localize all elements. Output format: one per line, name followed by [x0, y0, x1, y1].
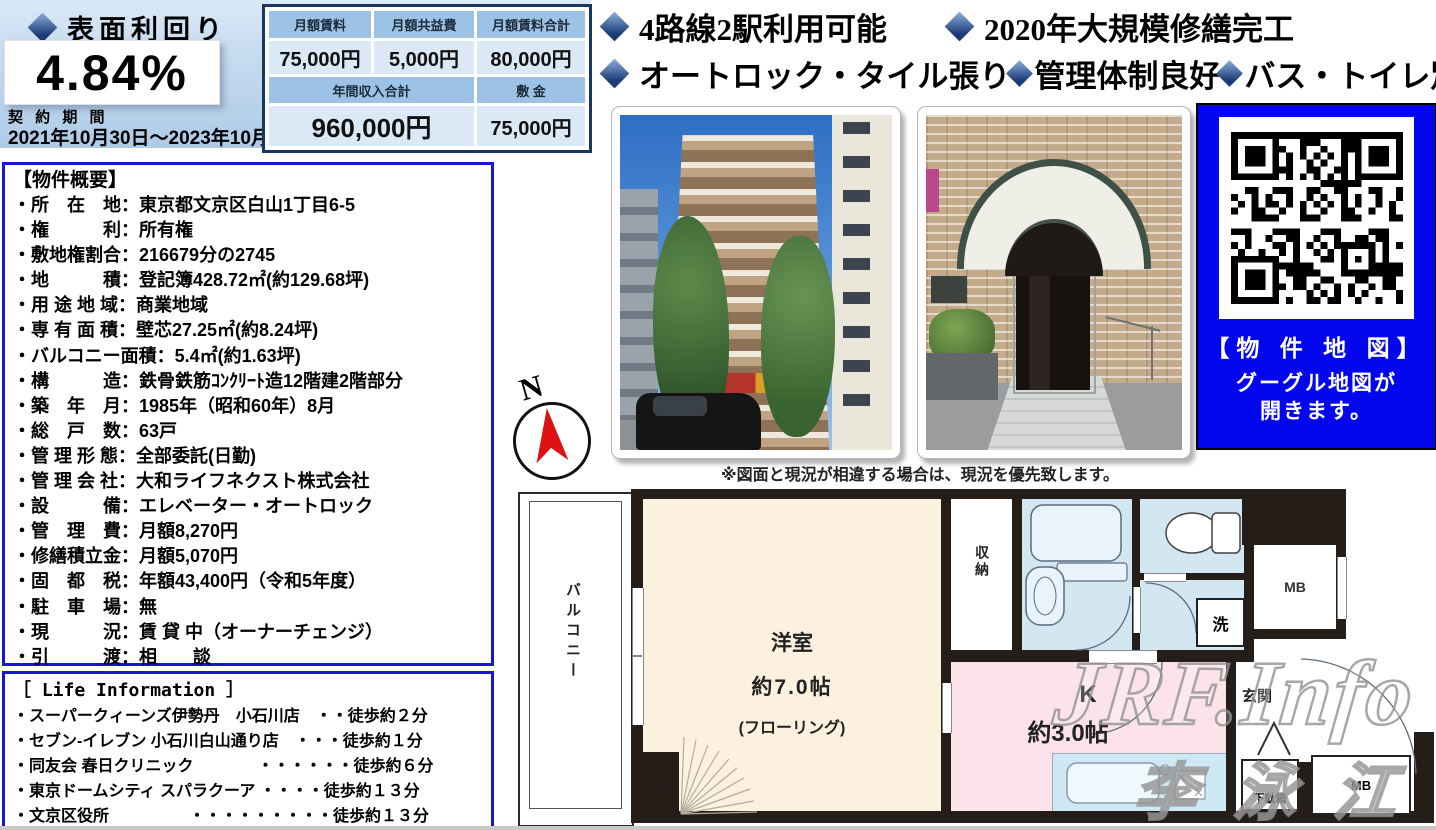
- overview-line: ・構 造：鉄骨鉄筋ｺﾝｸﾘｰﾄ造12階建2階部分: [13, 369, 491, 394]
- toilet-tank: [1212, 513, 1240, 553]
- life-info-line: ・東京ドームシティ スパラクーア ・・・・徒歩約１３分: [13, 779, 491, 804]
- entrance-photo: [917, 106, 1191, 459]
- property-flyer: 表面利回り 4.84% 契 約 期 間 2021年10月30日～2023年10月…: [0, 0, 1436, 830]
- kitchen-sink: [1067, 763, 1159, 803]
- highlights-row2: オートロック・タイル張り 管理体制良好 バス・トイレ別: [600, 50, 1436, 96]
- washroom-door-arc: [1146, 583, 1196, 633]
- overview-line: ・敷地権割合：216679分の2745: [13, 243, 491, 268]
- map-title: 【物 件 地 図】: [1198, 329, 1435, 363]
- bath-sink: [1026, 567, 1064, 625]
- overview-line: ・管 理 形 態：全部委託(日勤): [13, 444, 491, 469]
- deposit-label: 敷 金: [477, 77, 585, 103]
- life-info-line: ・スーパークィーンズ伊勢丹 小石川店 ・・徒歩約２分: [13, 704, 491, 729]
- hatch-fan: [681, 737, 757, 814]
- map-line2: 開きます。: [1198, 395, 1435, 425]
- closet-label: 収納: [972, 545, 992, 579]
- shoe-box: 下駄箱: [1241, 759, 1299, 811]
- overview-line: ・現 況：賃 貸 中（オーナーチェンジ）: [13, 620, 491, 645]
- overview-line: ・引 渡：相 談: [13, 645, 491, 670]
- overview-line: ・駐 車 場：無: [13, 595, 491, 620]
- plan-note: ※図面と現況が相違する場合は、現況を優先致します。: [640, 461, 1200, 485]
- highlight-item: バス・トイレ別: [1220, 51, 1436, 96]
- kitchen-label: K: [1013, 681, 1163, 709]
- overview-line: ・権 利：所有権: [13, 218, 491, 243]
- map-line1: グーグル地図が: [1198, 367, 1435, 397]
- overview-line: ・総 戸 数：63戸: [13, 419, 491, 444]
- handrail-post: [1151, 326, 1153, 380]
- diamond-icon: [600, 58, 630, 88]
- qr-wrap: [1219, 117, 1414, 319]
- plaque: [931, 276, 967, 303]
- bath-door-arc: [1076, 596, 1130, 650]
- life-info-line: ・同友会 春日クリニック ・・・・・・徒歩約６分: [13, 754, 491, 779]
- highlight-text: 4路線2駅利用可能: [639, 4, 887, 49]
- rent-value-monthly: 75,000円: [269, 41, 371, 74]
- rent-header-monthly: 月額賃料: [269, 11, 371, 38]
- rent-table: 月額賃料 月額共益費 月額賃料合計 75,000円 5,000円 80,000円…: [262, 4, 592, 153]
- meter-box-top: MB: [1254, 545, 1336, 629]
- overview-title: 【物件概要】: [13, 168, 491, 193]
- entrance-label: 玄関: [1242, 685, 1306, 706]
- yield-value: 4.84%: [4, 40, 220, 105]
- highlights-row1: 4路線2駅利用可能 2020年大規模修繕完工: [600, 3, 1436, 49]
- highlight-text: 管理体制良好: [1034, 51, 1220, 96]
- entrance-step-mark: [1258, 723, 1290, 755]
- highlight-item: 管理体制良好: [1010, 51, 1220, 96]
- overview-line: ・築 年 月：1985年（昭和60年）8月: [13, 394, 491, 419]
- kitchen-faucet: [1160, 765, 1170, 775]
- life-information-box: ［ Life Information ］ ・スーパークィーンズ伊勢丹 小石川店 …: [2, 671, 494, 830]
- highlight-item: オートロック・タイル張り: [600, 51, 1010, 96]
- diamond-icon: [600, 11, 630, 41]
- right-building-windows: [843, 122, 870, 424]
- bathtub: [1031, 505, 1121, 561]
- washer-box: 洗: [1196, 598, 1245, 647]
- highlight-text: オートロック・タイル張り: [639, 51, 1010, 96]
- tree: [761, 236, 834, 437]
- diamond-icon: [1006, 60, 1033, 87]
- overview-line: ・修繕積立金：月額5,070円: [13, 544, 491, 569]
- diamond-icon: [28, 13, 58, 43]
- map-panel[interactable]: 【物 件 地 図】 グーグル地図が 開きます。: [1196, 103, 1436, 450]
- building-photo: [611, 106, 901, 459]
- entrance-photo-scene: [926, 115, 1182, 450]
- highlight-text: バス・トイレ別: [1244, 51, 1436, 96]
- life-info-line: ・セブン-イレブン 小石川白山通り店 ・・・徒歩約１分: [13, 729, 491, 754]
- overview-line: ・地 積：登記簿428.72㎡(約129.68坪): [13, 268, 491, 293]
- qr-code[interactable]: [1231, 132, 1403, 304]
- car-window: [653, 396, 707, 416]
- western-room-floor: (フローリング): [692, 714, 892, 738]
- overview-line: ・固 都 税：年額43,400円（令和5年度）: [13, 569, 491, 594]
- bath-counter: [1057, 563, 1127, 581]
- balcony-label: バルコニー: [562, 582, 583, 682]
- kitchen-size: 約3.0帖: [978, 713, 1158, 748]
- western-room-label: 洋室: [692, 627, 892, 657]
- overview-line: ・専 有 面 積：壁芯27.25㎡(約8.24坪): [13, 318, 491, 343]
- compass-icon: [513, 402, 591, 480]
- deposit-value: 75,000円: [477, 106, 585, 146]
- highlight-item: 4路線2駅利用可能: [600, 4, 887, 49]
- highlight-text: 2020年大規模修繕完工: [984, 4, 1294, 49]
- overview-line: ・管 理 会 社：大和ライフネクスト株式会社: [13, 469, 491, 494]
- compass-arrow-icon: [516, 405, 582, 471]
- diamond-icon: [945, 11, 975, 41]
- building-photo-scene: [620, 115, 892, 450]
- meter-box-bottom: MB: [1311, 755, 1411, 815]
- rent-value-total: 80,000円: [477, 41, 585, 74]
- annual-income-value: 960,000円: [269, 106, 474, 146]
- property-overview-box: 【物件概要】 ・所 在 地：東京都文京区白山1丁目6-5 ・権 利：所有権 ・敷…: [2, 162, 494, 666]
- western-room-size: 約7.0帖: [692, 671, 892, 701]
- toilet-bowl: [1166, 513, 1218, 553]
- pink-sign: [926, 169, 939, 213]
- overview-line: ・用 途 地 域：商業地域: [13, 293, 491, 318]
- planter: [926, 353, 998, 400]
- annual-income-label: 年間収入合計: [269, 77, 474, 103]
- highlight-item: 2020年大規模修繕完工: [945, 4, 1294, 49]
- rent-header-fee: 月額共益費: [374, 11, 474, 38]
- overview-line: ・設 備：エレベーター・オートロック: [13, 494, 491, 519]
- overview-line: ・所 在 地：東京都文京区白山1丁目6-5: [13, 193, 491, 218]
- diamond-icon: [1216, 60, 1243, 87]
- floorplan: バルコニー MB: [514, 487, 1435, 829]
- rent-value-fee: 5,000円: [374, 41, 474, 74]
- life-info-title: ［ Life Information ］: [13, 678, 491, 704]
- overview-line: ・管 理 費：月額8,270円: [13, 519, 491, 544]
- rent-header-total: 月額賃料合計: [477, 11, 585, 38]
- overview-line: ・バルコニー面積：5.4㎡(約1.63坪): [13, 344, 491, 369]
